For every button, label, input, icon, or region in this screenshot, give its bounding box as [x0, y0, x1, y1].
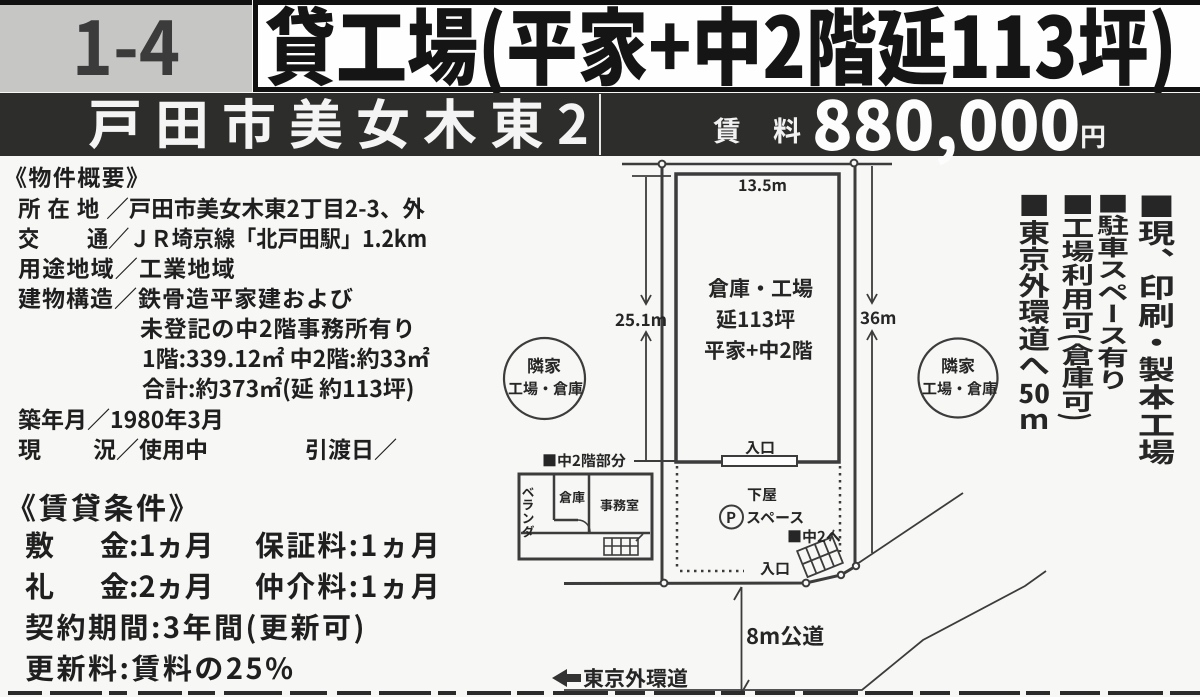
svg-text:工場・倉庫: 工場・倉庫: [922, 378, 997, 399]
svg-text:P: P: [726, 507, 736, 528]
svg-text:東京外環道: 東京外環道: [583, 663, 688, 693]
svg-text:入口: 入口: [745, 437, 775, 458]
svg-text:■中2階部分: ■中2階部分: [542, 450, 626, 471]
svg-text:36m: 36m: [860, 304, 896, 329]
svg-text:隣家: 隣家: [527, 352, 561, 377]
svg-text:工場・倉庫: 工場・倉庫: [508, 378, 583, 399]
svg-text:8m公道: 8m公道: [746, 619, 824, 651]
svg-text:倉庫: 倉庫: [559, 487, 585, 506]
svg-text:13.5m: 13.5m: [738, 172, 787, 196]
svg-text:隣家: 隣家: [941, 352, 975, 377]
svg-text:25.1m: 25.1m: [615, 306, 667, 331]
svg-text:スペース: スペース: [746, 507, 804, 528]
svg-text:■中2へ: ■中2へ: [787, 526, 841, 547]
svg-text:延113坪: 延113坪: [716, 304, 795, 334]
svg-text:事務室: 事務室: [600, 495, 639, 514]
svg-text:ベランダ: ベランダ: [519, 485, 538, 537]
svg-text:平家+中2階: 平家+中2階: [704, 335, 813, 365]
svg-text:倉庫・工場: 倉庫・工場: [708, 273, 813, 303]
svg-text:下屋: 下屋: [747, 484, 777, 505]
svg-text:入口: 入口: [760, 558, 790, 579]
